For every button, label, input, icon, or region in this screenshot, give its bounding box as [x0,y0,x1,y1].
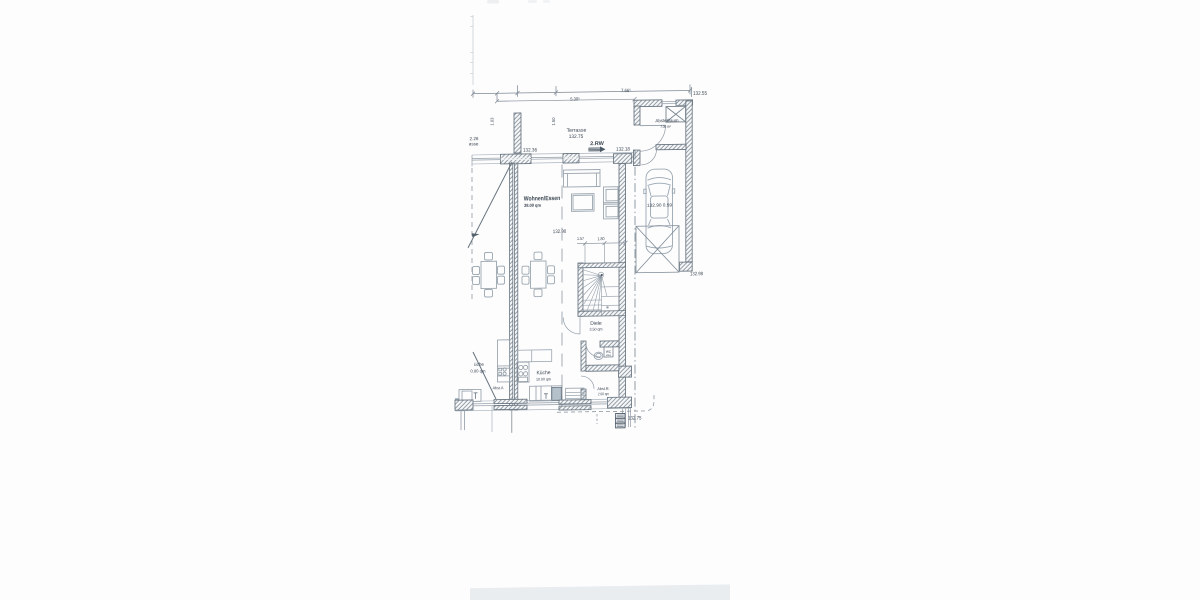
svg-text:asse: asse [469,141,479,146]
svg-text:132.98: 132.98 [690,271,703,277]
svg-text:Abst.A: Abst.A [493,385,504,390]
svg-text:2.RW: 2.RW [590,141,605,147]
svg-text:2.00 qm: 2.00 qm [598,392,609,396]
svg-text:1.50: 1.50 [551,117,556,126]
svg-text:1.80: 1.80 [598,236,606,241]
svg-text:Abst.R.: Abst.R. [597,386,609,391]
svg-text:5.30⁵: 5.30⁵ [570,96,580,101]
svg-text:10.00 qm: 10.00 qm [536,376,552,381]
svg-text:1.03: 1.03 [490,117,495,126]
svg-text:offen: offen [606,354,612,357]
svg-text:132.36: 132.36 [523,147,537,153]
svg-text:üche: üche [474,362,484,367]
svg-text:Abstellraum: Abstellraum [655,118,678,123]
svg-text:Terrasse: Terrasse [567,128,587,134]
svg-text:132.18: 132.18 [616,147,630,153]
svg-text:0.00 qm: 0.00 qm [470,368,486,373]
svg-text:132.90: 132.90 [553,229,567,235]
svg-text:Wohnen/Essen: Wohnen/Essen [524,195,561,203]
svg-text:132.55: 132.55 [693,91,707,97]
svg-text:7.66⁵: 7.66⁵ [621,88,631,94]
svg-text:38.00 qm: 38.00 qm [524,203,541,208]
svg-text:132.75: 132.75 [569,134,584,140]
svg-text:132.90 0.59: 132.90 0.59 [647,202,673,207]
svg-text:1.57: 1.57 [577,236,585,241]
svg-text:Küche: Küche [537,370,551,376]
svg-text:7.00 m²: 7.00 m² [660,124,671,129]
svg-text:3.50 qm: 3.50 qm [590,326,604,331]
